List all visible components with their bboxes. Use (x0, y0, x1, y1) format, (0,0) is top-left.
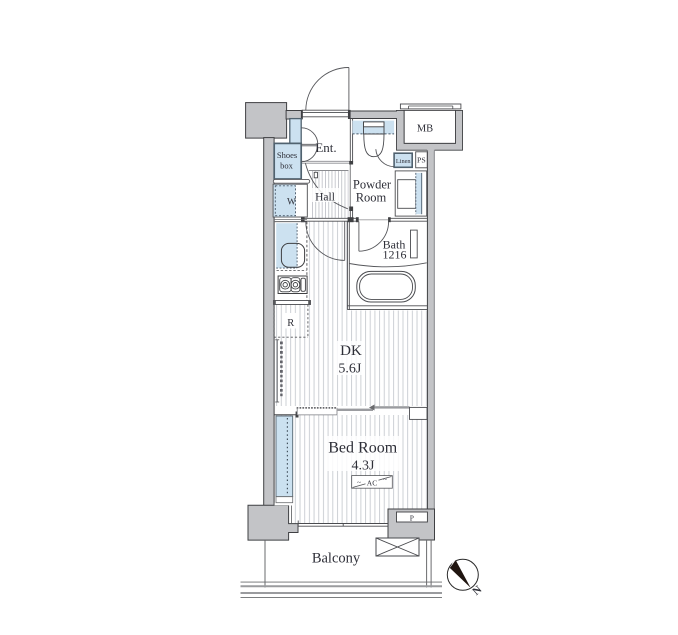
svg-text:Ent.: Ent. (315, 140, 336, 155)
svg-text:box: box (280, 160, 294, 170)
svg-text:1216: 1216 (383, 248, 407, 262)
svg-text:DK: DK (340, 343, 362, 359)
svg-text:5.6J: 5.6J (338, 361, 362, 376)
svg-text:~: ~ (357, 479, 361, 487)
svg-text:P: P (410, 513, 414, 522)
svg-text:Powder: Powder (353, 178, 392, 192)
svg-text:~: ~ (383, 476, 387, 484)
svg-text:R: R (287, 318, 294, 329)
svg-text:W: W (287, 197, 296, 207)
svg-text:Room: Room (356, 191, 387, 205)
svg-text:AC: AC (367, 478, 377, 487)
svg-text:Balcony: Balcony (312, 551, 361, 567)
svg-text:PS: PS (417, 156, 426, 165)
svg-text:4.3J: 4.3J (352, 458, 376, 473)
svg-text:Shoes: Shoes (277, 150, 297, 160)
svg-text:Bed Room: Bed Room (328, 439, 397, 456)
svg-text:MB: MB (417, 124, 433, 135)
svg-text:Hall: Hall (315, 192, 335, 204)
svg-text:Linen: Linen (396, 158, 412, 165)
